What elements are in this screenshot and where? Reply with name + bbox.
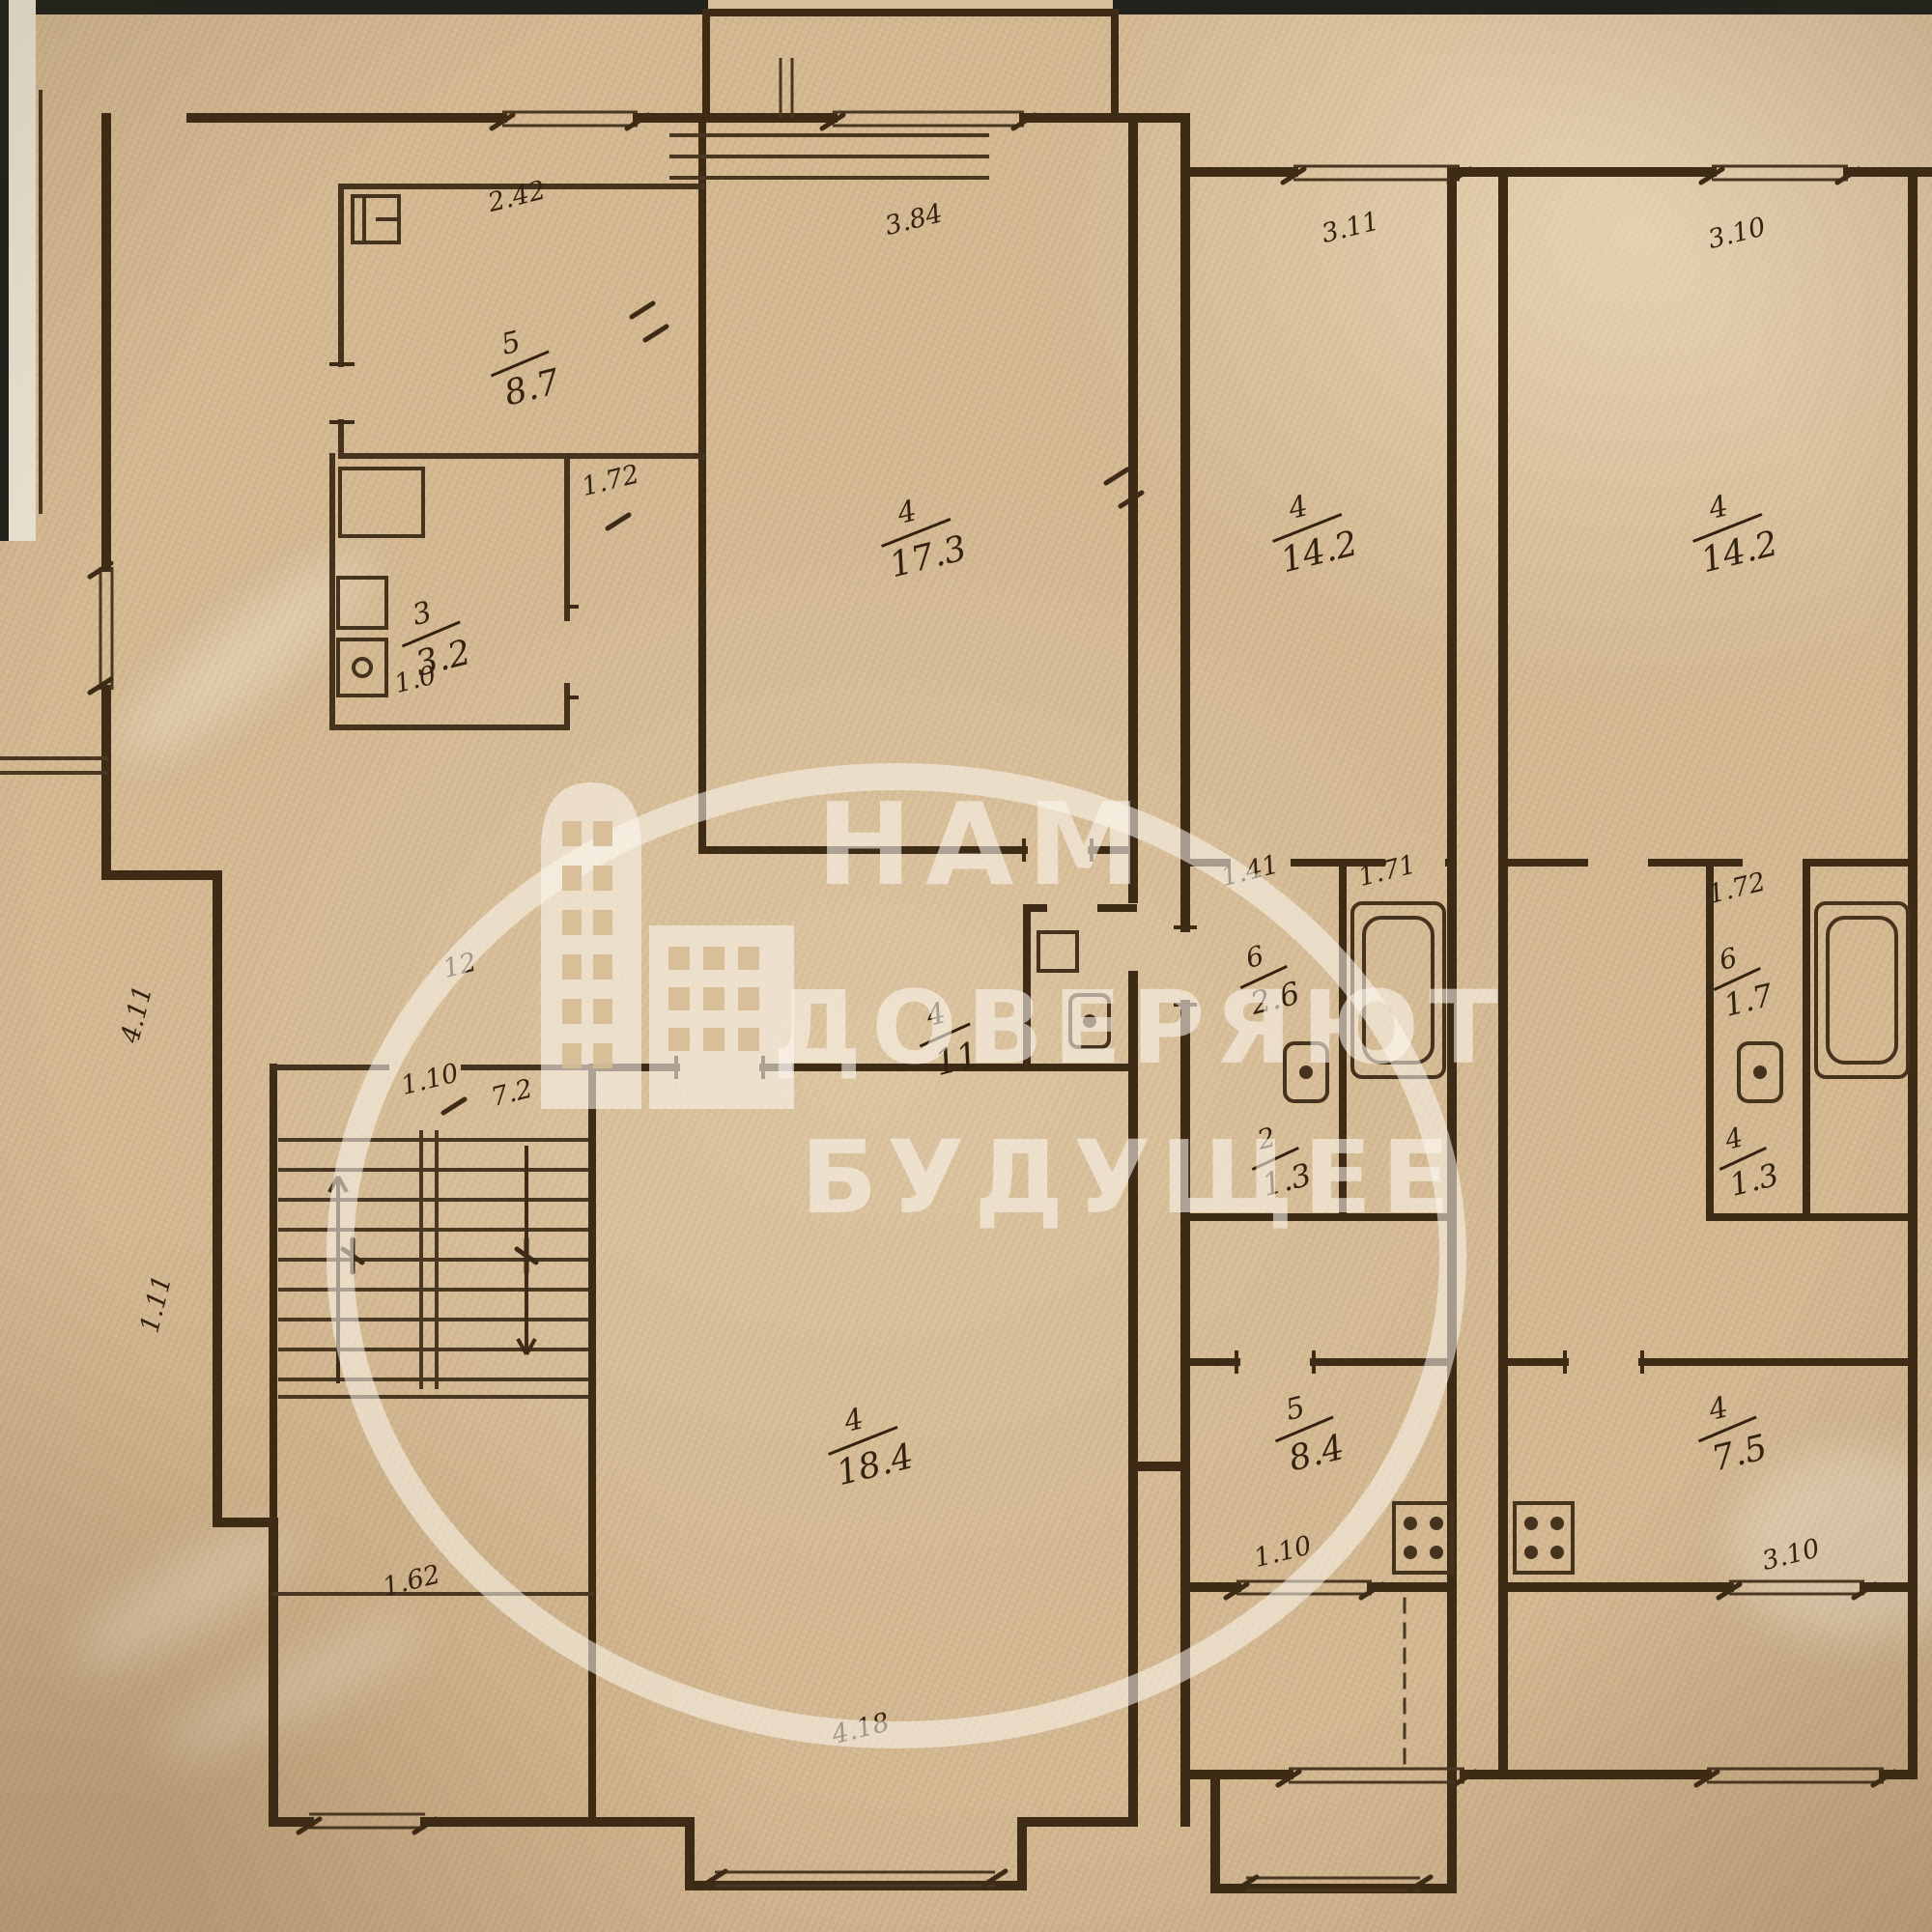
svg-text:14.2: 14.2 xyxy=(1277,524,1362,581)
dim-label: 1.62 xyxy=(380,1559,443,1603)
watermark-line1: НАМ xyxy=(816,778,1154,911)
room-label: 4 17.3 xyxy=(871,484,971,586)
floor-plan: 5 8.7 3 3.2 4 17.3 4 14.2 4 14.2 4 11 xyxy=(0,0,1932,1932)
svg-text:7.5: 7.5 xyxy=(1708,1428,1771,1480)
svg-text:4: 4 xyxy=(1705,1390,1732,1428)
dim-label: 3.10 xyxy=(1705,212,1769,255)
watermark: НАМ ДОВЕРЯЮТ БУДУЩЕЕ xyxy=(340,777,1507,1735)
room-label: 5 8.4 xyxy=(1265,1383,1349,1482)
room-label: 4 1.3 xyxy=(1710,1115,1783,1205)
toilet-icon xyxy=(338,639,386,696)
stove-icon xyxy=(1515,1503,1573,1573)
svg-text:17.3: 17.3 xyxy=(886,528,971,585)
dim-label: 3.11 xyxy=(1319,206,1382,249)
dimension-labels: 2.42 3.84 3.11 3.10 1.72 1.41 1.71 1.72 … xyxy=(115,175,1823,1750)
dim-label: 1.0 xyxy=(391,661,439,699)
svg-text:5: 5 xyxy=(1282,1390,1308,1428)
sink-icon xyxy=(1038,932,1077,971)
room-label: 4 14.2 xyxy=(1683,479,1782,582)
watermark-line2: ДОВЕРЯЮТ xyxy=(773,969,1508,1087)
room-label: 6 1.7 xyxy=(1704,935,1777,1026)
svg-text:5: 5 xyxy=(497,325,524,362)
svg-text:4: 4 xyxy=(1720,1121,1746,1156)
svg-text:8.4: 8.4 xyxy=(1285,1428,1348,1480)
svg-text:4: 4 xyxy=(1285,489,1312,526)
svg-text:3: 3 xyxy=(409,595,435,633)
room-label: 4 18.4 xyxy=(818,1392,918,1494)
dim-label: 1.72 xyxy=(579,459,642,502)
dim-label: 1.72 xyxy=(1705,867,1769,910)
room-label: 5 8.7 xyxy=(481,318,564,416)
dim-label: 2.42 xyxy=(484,175,549,218)
room-label: 4 14.2 xyxy=(1263,479,1362,582)
watermark-ring xyxy=(340,777,1453,1735)
stove-icon xyxy=(1394,1503,1452,1573)
dim-label: 7.2 xyxy=(488,1074,535,1113)
dim-label: 3.10 xyxy=(1759,1533,1823,1577)
dim-label: 3.84 xyxy=(882,198,946,241)
closet-icon xyxy=(340,469,423,536)
dim-label: 1.10 xyxy=(398,1058,462,1101)
svg-text:14.2: 14.2 xyxy=(1697,524,1782,581)
svg-text:18.4: 18.4 xyxy=(833,1436,918,1493)
svg-text:8.7: 8.7 xyxy=(500,362,564,414)
dim-label: 1.71 xyxy=(1355,849,1419,893)
svg-text:4: 4 xyxy=(894,494,921,531)
svg-text:4: 4 xyxy=(1705,489,1732,526)
watermark-line3: БУДУЩЕЕ xyxy=(801,1119,1460,1236)
svg-text:6: 6 xyxy=(1716,941,1740,976)
sink-icon xyxy=(338,578,386,628)
dim-label: 4.11 xyxy=(115,982,158,1047)
svg-text:4: 4 xyxy=(840,1402,867,1439)
dim-label: 1.11 xyxy=(134,1272,178,1336)
room-label: 4 7.5 xyxy=(1689,1383,1772,1482)
